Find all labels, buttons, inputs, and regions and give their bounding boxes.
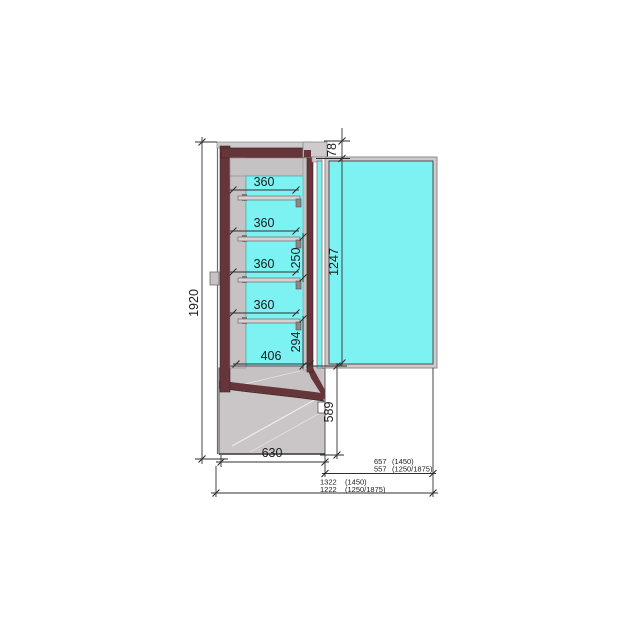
shelf-board — [238, 196, 300, 200]
dim-label-base-depth: 630 — [262, 446, 283, 460]
dim-label-door-height: 1247 — [327, 248, 341, 276]
technical-drawing: 1920 360 360 360 360 250 294 — [0, 0, 640, 640]
front-liner — [303, 158, 307, 370]
shelf-board — [238, 237, 300, 241]
dim-label-top-recess: 78 — [325, 143, 339, 157]
dim-label-total-depth-alt: 1222 — [320, 485, 337, 494]
door-glass-closed-section — [317, 161, 322, 368]
dim-label-door-projection-alt-variant: (1250/1875) — [392, 465, 433, 474]
shelf-bracket — [296, 199, 301, 207]
top-liner — [230, 158, 306, 176]
shelf-bracket — [296, 322, 301, 330]
section-drawing-canvas: 1920 360 360 360 360 250 294 — [0, 0, 640, 640]
dim-label-shelf-2: 360 — [254, 216, 275, 230]
dim-label-well-depth: 406 — [261, 349, 282, 363]
top-insulation — [221, 148, 308, 158]
door-glass — [329, 161, 433, 364]
top-skin — [217, 142, 312, 148]
shelf-bracket — [296, 240, 301, 248]
dim-label-shelf-4: 360 — [254, 298, 275, 312]
dim-label-overall-height: 1920 — [187, 289, 201, 317]
dim-label-lower-gap: 294 — [289, 332, 303, 353]
dim-door-projection: 657 (1450) 557 (1250/1875) — [322, 457, 437, 477]
dim-label-shelf-pitch: 250 — [289, 248, 303, 269]
wall-spacer-tab — [210, 272, 219, 285]
dim-label-shelf-1: 360 — [254, 175, 275, 189]
shelf-board — [238, 278, 300, 282]
front-frame — [307, 156, 313, 372]
dim-label-door-projection-alt: 557 — [374, 465, 387, 474]
back-liner — [230, 158, 246, 368]
dim-label-total-depth-alt-variant: (1250/1875) — [345, 485, 386, 494]
shelf-board — [238, 319, 300, 323]
dim-label-base-front-height: 589 — [322, 402, 336, 423]
dim-label-shelf-3: 360 — [254, 257, 275, 271]
header-insulation — [304, 150, 311, 157]
back-wall-insulation — [220, 146, 230, 392]
shelf-bracket — [296, 281, 301, 289]
